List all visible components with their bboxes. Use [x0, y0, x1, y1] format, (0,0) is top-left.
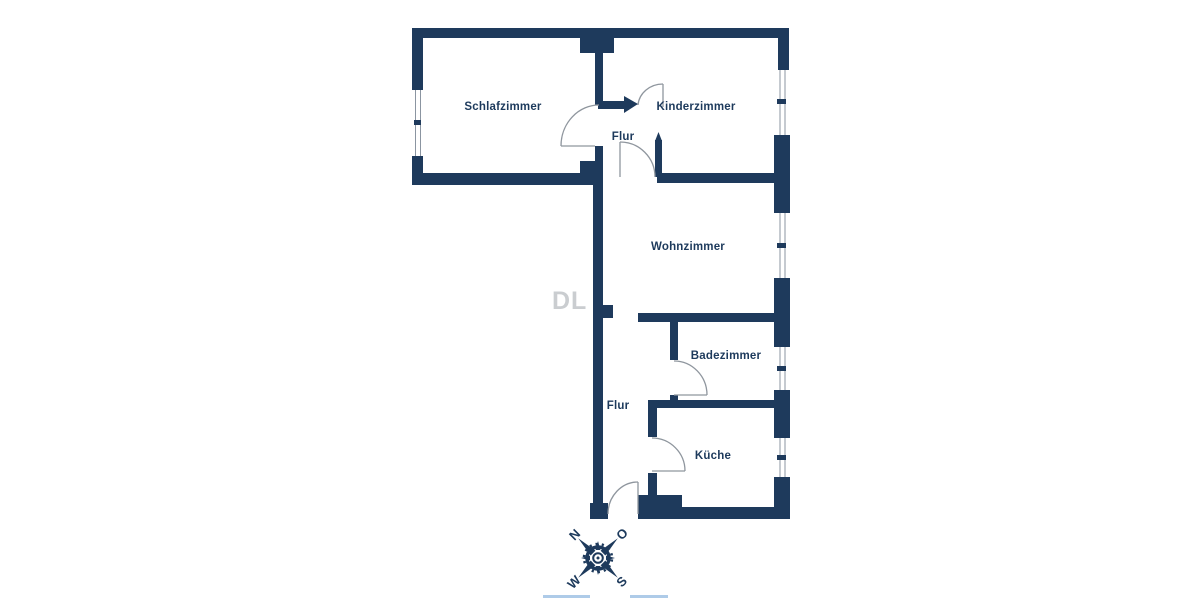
- window-kueche: [776, 438, 791, 477]
- room-label-wohnzimmer: Wohnzimmer: [651, 241, 725, 253]
- room-label-flur-unten: Flur: [607, 400, 630, 412]
- wall-segment: [593, 185, 603, 517]
- window-kinderzimmer: [776, 70, 791, 135]
- wall-segment: [774, 477, 790, 519]
- compass-s: S: [613, 573, 630, 590]
- wall-segment: [648, 473, 657, 507]
- wall-segment: [590, 503, 608, 519]
- door-kueche: [652, 438, 685, 471]
- wall-segment: [638, 313, 789, 322]
- wall-segment: [595, 38, 603, 105]
- wall-segment: [638, 507, 789, 519]
- floorplan-page: N O S W Schlafzimmer Kinderzimmer Flur W…: [0, 0, 1200, 600]
- wall-segment: [595, 146, 603, 173]
- room-label-schlafzimmer: Schlafzimmer: [464, 101, 541, 113]
- wall-segment: [670, 395, 678, 408]
- door-jamb-tip: [655, 132, 662, 141]
- wall-segment: [657, 173, 789, 183]
- wall-segment: [670, 322, 678, 360]
- door-wohnzimmer: [620, 142, 655, 177]
- wall-segment: [778, 38, 789, 70]
- wall-segment: [412, 38, 423, 90]
- wall-segment: [412, 173, 603, 185]
- wall-segment: [603, 305, 613, 318]
- wall-segment: [774, 135, 790, 213]
- door-jamb-arrow: [624, 96, 638, 113]
- window-wohnzimmer: [776, 213, 791, 278]
- floorplan-svg: N O S W: [0, 0, 1200, 600]
- wall-segment: [774, 390, 790, 438]
- wall-segment: [655, 140, 662, 177]
- wall-segment: [648, 408, 657, 437]
- room-label-kinderzimmer: Kinderzimmer: [656, 101, 735, 113]
- wall-segment: [774, 278, 790, 347]
- room-label-flur-oben: Flur: [612, 131, 635, 143]
- wall-segment: [598, 101, 624, 109]
- room-label-kueche: Küche: [695, 450, 731, 462]
- door-entrance: [608, 482, 638, 514]
- room-label-badezimmer: Badezimmer: [691, 350, 761, 362]
- wall-segment: [638, 495, 682, 507]
- door-badezimmer: [674, 361, 707, 395]
- wall-segment: [412, 28, 789, 38]
- accent-lines: [543, 595, 668, 598]
- wall-segment: [648, 400, 789, 408]
- window-badezimmer: [776, 347, 791, 390]
- watermark-text: DL: [552, 287, 587, 316]
- door-schlafzimmer: [561, 105, 599, 146]
- window-schlafzimmer: [410, 87, 424, 159]
